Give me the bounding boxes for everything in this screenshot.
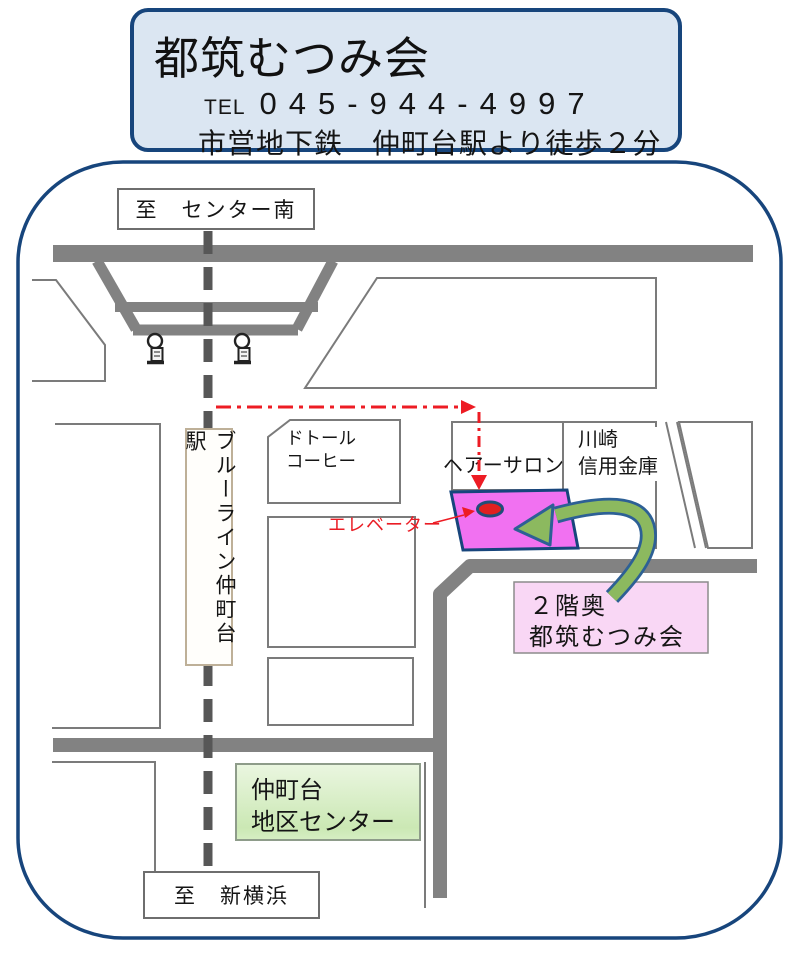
destination-line2: 都筑むつみ会 [529,622,685,653]
elevator-marker [478,502,503,516]
tel-number: 045-944-4997 [260,86,597,122]
kawasaki-line1: 川崎 [578,427,658,454]
phone-row: TEL 045-944-4997 [204,86,597,122]
district-center-line1: 仲町台 [251,775,419,807]
station-name: ブルーライン仲町台駅 [179,430,239,664]
access-map-page: 都筑むつみ会 TEL 045-944-4997 市営地下鉄 仲町台駅より徒歩２分… [0,0,800,966]
kawasaki-bank-label: 川崎 信用金庫 [578,427,658,481]
direction-label: 至 センター南 [136,194,297,224]
site-building [451,490,578,550]
station-name-box: ブルーライン仲町台駅 [185,428,233,666]
elevator-label: エレベーター [328,511,442,537]
district-center-box: 仲町台 地区センター [235,763,421,841]
doutor-coffee-label: ドトール コーヒー [286,427,356,473]
destination-label: ２階奥 都筑むつみ会 [529,591,685,653]
doutor-line2: コーヒー [286,450,356,473]
hair-salon-label: ヘアーサロン [443,449,564,478]
direction-label: 至 新横浜 [174,880,289,910]
doutor-line1: ドトール [286,427,356,450]
district-center-line2: 地区センター [251,807,419,839]
access-note: 市営地下鉄 仲町台駅より徒歩２分 [198,122,661,162]
direction-box-shin-yokohama: 至 新横浜 [143,871,320,919]
page-title: 都筑むつみ会 [154,22,430,87]
direction-box-center-minami: 至 センター南 [117,188,315,230]
header-card: 都筑むつみ会 TEL 045-944-4997 市営地下鉄 仲町台駅より徒歩２分 [130,8,682,152]
kawasaki-line2: 信用金庫 [578,454,658,481]
tel-label: TEL [204,96,246,120]
destination-line1: ２階奥 [529,591,685,622]
